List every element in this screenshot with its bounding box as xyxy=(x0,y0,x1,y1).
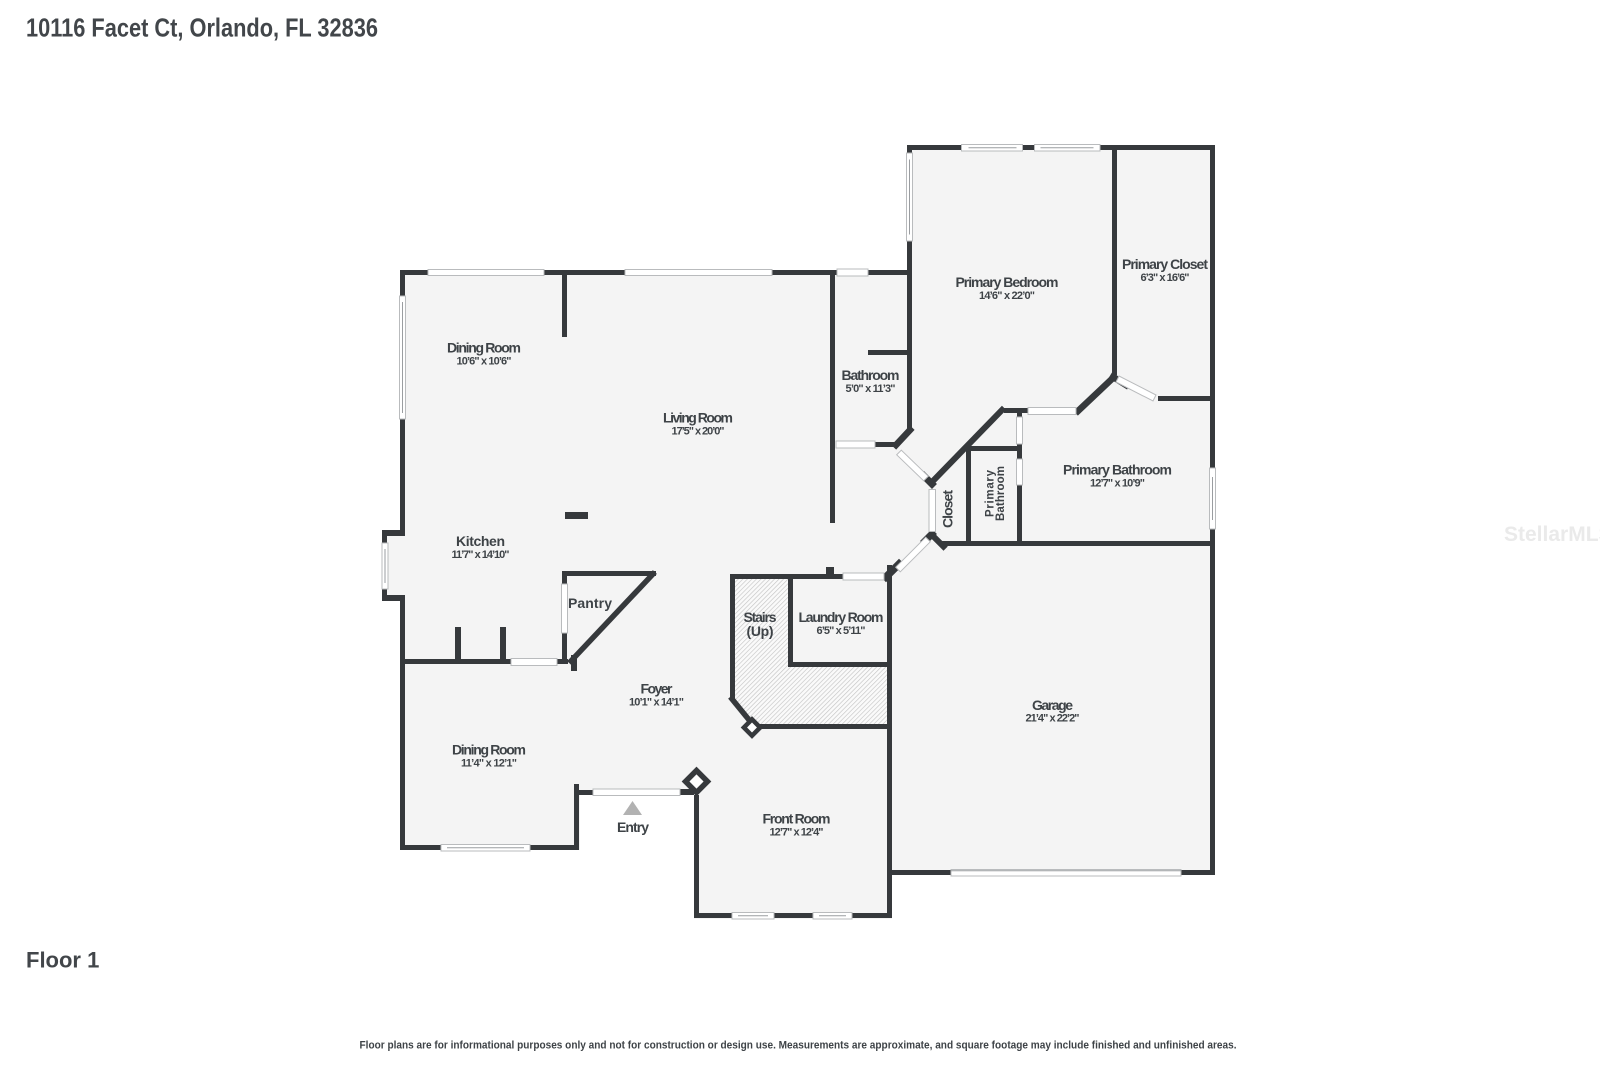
svg-text:10’6" x 10’6": 10’6" x 10’6" xyxy=(457,355,512,367)
svg-text:Floor plans are for informatio: Floor plans are for informational purpos… xyxy=(360,1040,1237,1052)
svg-text:10116 Facet Ct, Orlando, FL 32: 10116 Facet Ct, Orlando, FL 32836 xyxy=(26,13,378,43)
svg-text:Bathroom: Bathroom xyxy=(842,367,900,383)
svg-text:Garage: Garage xyxy=(1032,697,1073,713)
svg-text:Living Room: Living Room xyxy=(663,410,733,426)
svg-text:Kitchen: Kitchen xyxy=(456,533,505,549)
svg-text:6’3" x 16’6": 6’3" x 16’6" xyxy=(1141,272,1190,284)
svg-text:21’4" x 22’2": 21’4" x 22’2" xyxy=(1026,713,1080,725)
svg-text:10’1" x 14’1": 10’1" x 14’1" xyxy=(629,697,684,709)
svg-text:Primary Bathroom: Primary Bathroom xyxy=(1063,461,1172,477)
svg-text:(Up): (Up) xyxy=(747,623,774,639)
svg-text:Front Room: Front Room xyxy=(763,811,831,827)
svg-text:Entry: Entry xyxy=(617,819,649,835)
svg-text:Bathroom: Bathroom xyxy=(995,466,1007,521)
svg-text:Floor 1: Floor 1 xyxy=(26,948,99,973)
svg-text:Laundry Room: Laundry Room xyxy=(799,609,884,625)
svg-text:Pantry: Pantry xyxy=(568,595,612,611)
svg-text:6’5" x 5’11": 6’5" x 5’11" xyxy=(817,625,866,637)
svg-text:17’5" x 20’0": 17’5" x 20’0" xyxy=(672,426,725,438)
svg-text:11’4" x 12’1": 11’4" x 12’1" xyxy=(461,758,517,770)
svg-text:Dining Room: Dining Room xyxy=(447,339,521,355)
svg-text:Dining Room: Dining Room xyxy=(452,742,526,758)
svg-text:Closet: Closet xyxy=(940,490,956,528)
svg-text:Primary Closet: Primary Closet xyxy=(1122,256,1208,272)
svg-text:Primary Bedroom: Primary Bedroom xyxy=(956,274,1059,290)
svg-text:12’7" x 10’9": 12’7" x 10’9" xyxy=(1090,477,1145,489)
svg-text:12’7" x 12’4": 12’7" x 12’4" xyxy=(770,827,824,839)
svg-text:Foyer: Foyer xyxy=(641,681,674,697)
svg-text:StellarMLS: StellarMLS xyxy=(1504,523,1600,546)
svg-text:14’6" x 22’0": 14’6" x 22’0" xyxy=(979,290,1035,302)
svg-text:5’0" x 11’3": 5’0" x 11’3" xyxy=(846,383,896,395)
svg-text:11’7" x 14’10": 11’7" x 14’10" xyxy=(452,549,510,561)
